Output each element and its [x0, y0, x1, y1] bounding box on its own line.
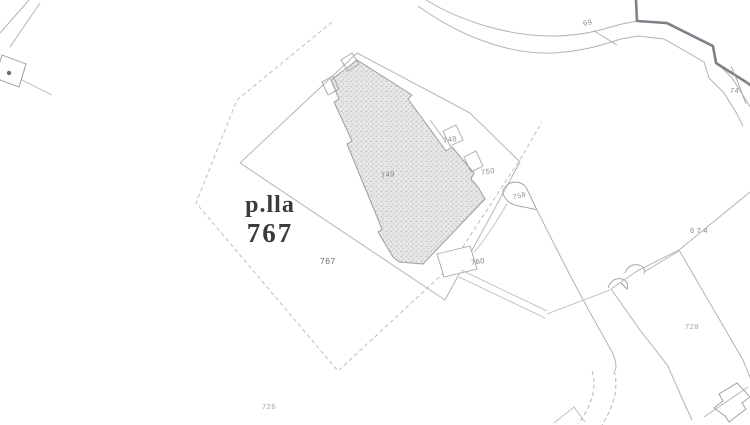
municipal-boundary-thick-line [636, 0, 750, 90]
road-74-edge [731, 66, 746, 104]
track-upper [461, 270, 547, 311]
topleft-line-2 [10, 3, 40, 47]
parcel-767-prefix: p.lla [228, 192, 312, 218]
building-footprint [331, 60, 485, 264]
parcel-label-728: 728 [685, 322, 699, 331]
parcel-728-west-edge [611, 289, 692, 420]
path-flag-to-annex [474, 204, 507, 252]
boundary-hooks-to-728 [644, 251, 679, 272]
topleft-symbol-box [0, 55, 26, 87]
parcel-label-674: 674 [690, 226, 710, 235]
track-east [547, 290, 610, 314]
survey-point-dot [7, 71, 11, 75]
leader-69 [594, 31, 617, 45]
road-top-upper-line [426, 0, 750, 110]
parcel-label-748: 748 [442, 134, 457, 145]
road-bottom-right-line [602, 371, 616, 425]
topleft-line-1 [0, 0, 29, 33]
road-label-69: 69 [582, 17, 593, 27]
parcel-label-760: 760 [470, 256, 485, 267]
parcel-label-749: 749 [380, 169, 395, 180]
topleft-line-3 [22, 80, 52, 95]
parcel-728-northeast-edge [679, 192, 750, 250]
track-lower [459, 277, 545, 318]
cadastral-map-view[interactable]: p.lla 767 767 749 748 750 758 760 674 72… [0, 0, 750, 425]
parcel-label-750: 750 [480, 166, 495, 177]
parcel-767-number: 767 [228, 218, 312, 248]
parcel-label-726: 726 [262, 402, 276, 411]
parcel-767-main-label: p.lla 767 [228, 192, 312, 248]
parcel-728-east-edge [679, 250, 750, 385]
parcel-label-767-sub: 767 [320, 256, 336, 266]
road-top-lower-line [418, 6, 743, 126]
road-label-74: 74 [730, 86, 739, 95]
road-right-edge [537, 210, 616, 371]
map-linework [0, 0, 750, 425]
